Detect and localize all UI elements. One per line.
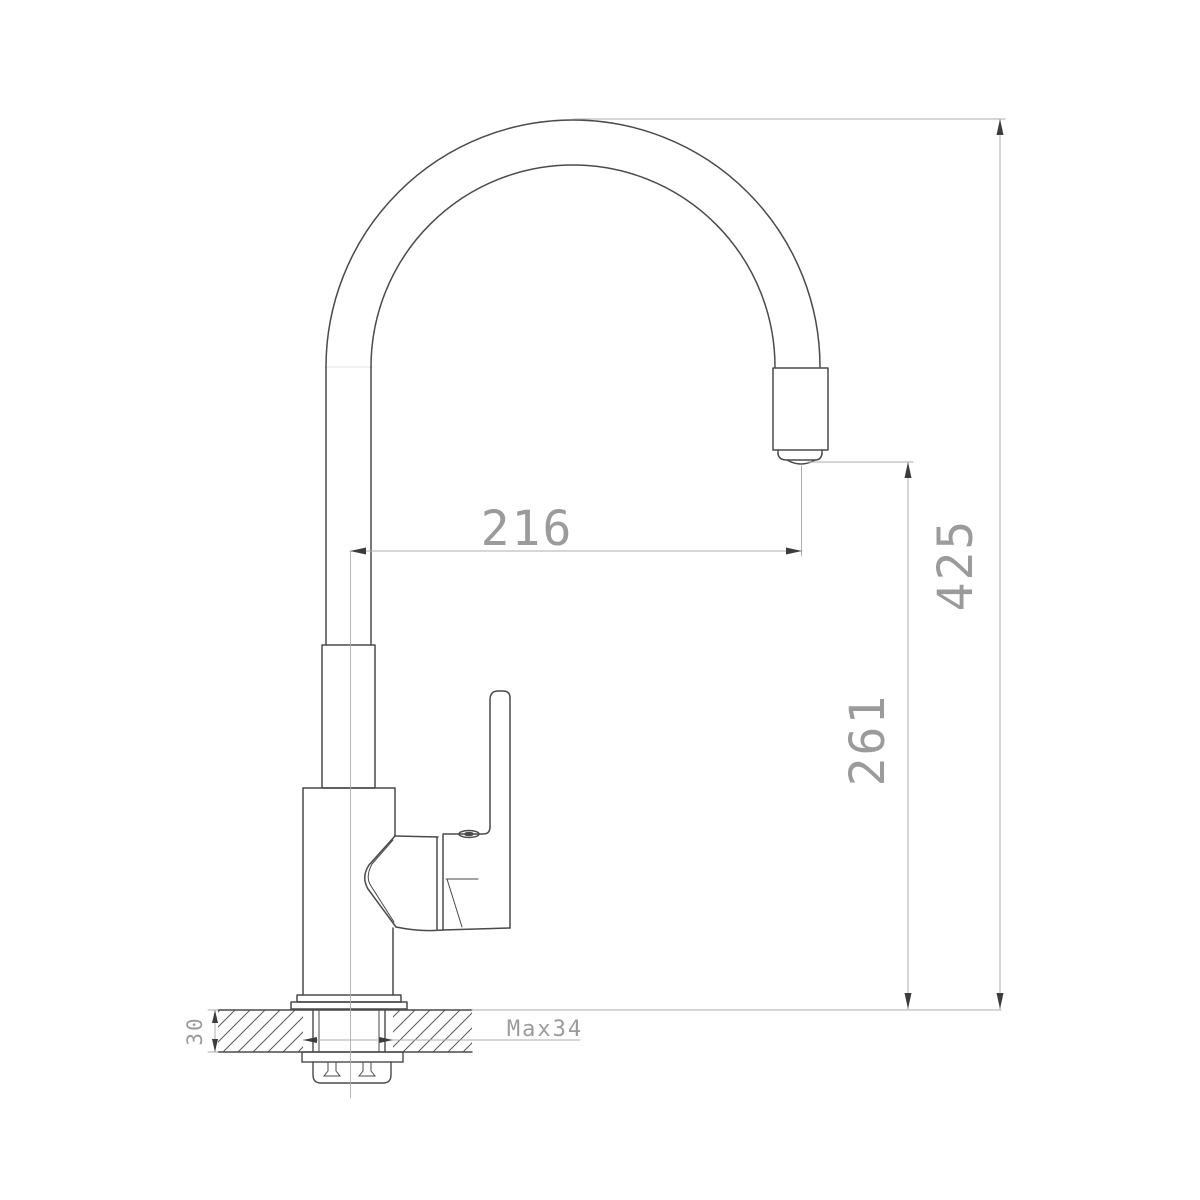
countertop-section (218, 1010, 472, 1083)
arrow-425-top (997, 119, 1004, 135)
spout-inner-arc (371, 165, 775, 367)
ext-line-counter-left (208, 1010, 218, 1052)
dimension-lines (208, 119, 1005, 1098)
handle-inner-diagonal (447, 879, 462, 927)
nut-slot-right (359, 1062, 375, 1076)
base-flange-upper (297, 995, 401, 1002)
shank-outer-edges (313, 1010, 385, 1052)
spout-head (773, 368, 828, 450)
faucet-outline (291, 120, 828, 1009)
valve-top-edge (395, 836, 438, 837)
shank-inner-edges (319, 1010, 379, 1052)
arrow-425-bottom (997, 993, 1004, 1009)
arrow-216-right (786, 548, 802, 555)
handle-lever (490, 691, 510, 928)
arrow-216-left (350, 548, 366, 555)
dim-label-spout-outlet-height: 261 (840, 694, 896, 787)
collar (322, 645, 375, 788)
valve-cap-edges (437, 835, 443, 930)
dimension-arrows (212, 119, 1004, 1052)
dim-label-counter-thickness: 30 (183, 1016, 207, 1045)
handle-set-screw-center (465, 833, 473, 836)
arrow-max34-right (379, 1037, 393, 1043)
arrow-261-top (905, 462, 912, 478)
mounting-washer (302, 1052, 403, 1062)
base-flange-lower (291, 1002, 407, 1009)
aerator-cap (778, 454, 822, 460)
dim-label-spout-reach: 216 (481, 501, 574, 557)
dim-label-overall-height: 425 (928, 519, 984, 612)
dim-label-max-mounting: Max34 (507, 1017, 583, 1042)
arrow-30-bottom (212, 1039, 218, 1052)
technical-drawing-page: 216 425 261 30 Max34 (0, 0, 1200, 1200)
arrow-max34-left (303, 1037, 317, 1043)
spout-outer-arc (326, 120, 820, 367)
arrow-30-top (212, 1010, 218, 1023)
counter-hatch-left (218, 1010, 303, 1052)
nut-slot-left (324, 1062, 340, 1076)
mounting-nut (313, 1062, 391, 1083)
valve-bottom-edge (396, 927, 510, 931)
valve-left-profile (365, 836, 396, 927)
faucet-technical-drawing: 216 425 261 30 Max34 (0, 0, 1200, 1200)
counter-hatch-right (393, 1010, 472, 1052)
arrow-261-bottom (905, 993, 912, 1009)
